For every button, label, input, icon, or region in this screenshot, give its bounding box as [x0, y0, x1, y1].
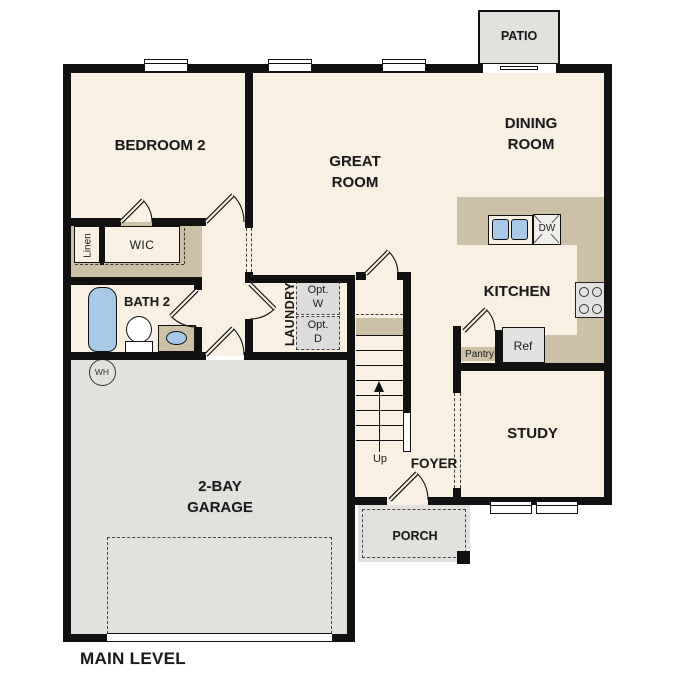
kitchen-sink	[488, 215, 533, 245]
dishwasher-label: DW	[536, 223, 558, 234]
porch-post	[457, 551, 470, 564]
wic-rod-dash-v	[184, 228, 185, 264]
pantry-label: Pantry	[460, 348, 499, 362]
window	[536, 501, 578, 514]
dining-room-label: DINING ROOM	[480, 113, 582, 155]
door-stairs	[363, 238, 403, 278]
wall	[63, 218, 121, 226]
wall	[453, 488, 461, 505]
bathtub	[88, 287, 117, 352]
wall	[152, 218, 206, 226]
wall	[63, 277, 202, 285]
burner	[592, 287, 602, 297]
window	[268, 59, 312, 72]
stair-landing	[356, 318, 403, 335]
study-label: STUDY	[475, 424, 590, 444]
sink-basin-right	[511, 219, 528, 240]
water-heater: WH	[89, 359, 116, 386]
laundry-label: LAUNDRY	[282, 274, 298, 354]
door-garage-entry	[203, 313, 249, 359]
wall	[100, 226, 104, 265]
water-heater-label: WH	[90, 367, 114, 378]
stair-direction-line	[379, 390, 380, 452]
foyer-label: FOYER	[405, 455, 463, 473]
linen-label: Linen	[82, 225, 95, 267]
wall	[604, 64, 612, 505]
stair-dash	[356, 314, 403, 315]
refrigerator: Ref	[502, 327, 545, 363]
porch-label: PORCH	[370, 528, 460, 545]
burner	[579, 304, 589, 314]
garage-label: 2-BAY GARAGE	[150, 476, 290, 518]
floor-plan: PATIO WIC Linen DW Ref Pantry	[0, 0, 687, 687]
burner	[592, 304, 602, 314]
door-bedroom2	[203, 180, 249, 226]
toilet-bowl	[126, 316, 152, 343]
wall	[347, 275, 355, 642]
window	[490, 501, 532, 514]
cased-opening	[460, 393, 461, 488]
sink-basin-left	[492, 219, 509, 240]
window	[382, 59, 426, 72]
wall	[63, 352, 206, 360]
dishwasher: DW	[533, 214, 561, 245]
kitchen-label: KITCHEN	[460, 282, 574, 302]
garage-door-dash	[107, 537, 332, 634]
stove	[575, 282, 605, 318]
optional-dryer: Opt. D	[296, 316, 340, 350]
bedroom2-label: BEDROOM 2	[75, 136, 245, 156]
plan-title: MAIN LEVEL	[80, 648, 280, 671]
patio-slider-door	[483, 64, 556, 73]
vanity-sink	[166, 331, 187, 345]
bath2-label: BATH 2	[116, 293, 178, 311]
window	[144, 59, 188, 72]
cased-opening	[251, 228, 252, 272]
kitchen-bottom-counter	[545, 335, 608, 363]
garage-door-opening	[107, 633, 332, 642]
wall	[453, 363, 612, 371]
refrigerator-label: Ref	[503, 338, 543, 354]
wall	[453, 371, 461, 393]
great-room-label: GREAT ROOM	[300, 151, 410, 193]
wall	[403, 272, 411, 412]
wall	[244, 352, 355, 360]
door-wic	[118, 187, 157, 226]
wic-label: WIC	[112, 237, 172, 253]
burner	[579, 287, 589, 297]
patio-label: PATIO	[478, 28, 560, 45]
stair-opening	[403, 412, 411, 452]
cased-opening	[246, 228, 247, 272]
patio-slider-panel	[500, 66, 538, 70]
cased-opening	[454, 393, 455, 488]
stair-arrow-icon	[374, 381, 384, 392]
optional-washer: Opt. W	[296, 281, 340, 315]
